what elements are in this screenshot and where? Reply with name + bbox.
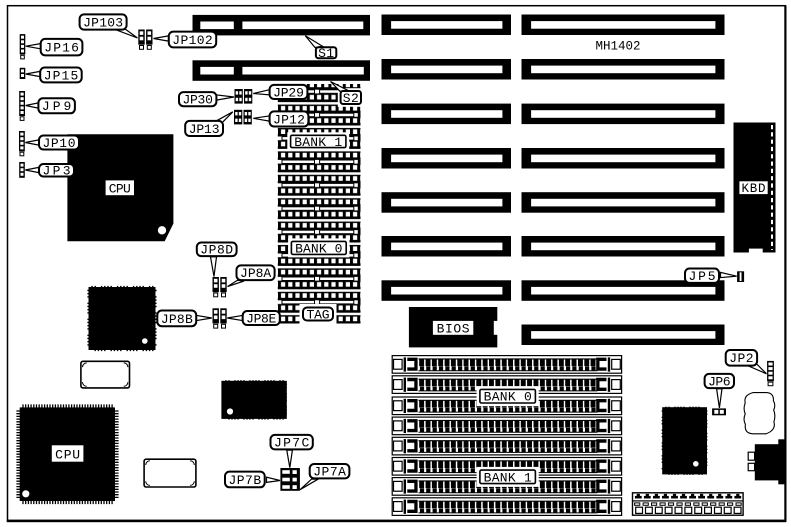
svg-text:S2: S2 [343, 91, 359, 106]
svg-text:S1: S1 [318, 46, 334, 61]
svg-text:CPU: CPU [109, 182, 131, 197]
svg-text:JP7A: JP7A [313, 465, 346, 480]
svg-text:JP102: JP102 [172, 33, 212, 48]
svg-text:JP3: JP3 [43, 164, 71, 179]
svg-text:JP8D: JP8D [200, 243, 233, 258]
svg-text:BANK 1: BANK 1 [294, 135, 342, 150]
svg-text:JP12: JP12 [273, 112, 305, 127]
svg-text:JP10: JP10 [43, 136, 76, 151]
svg-text:BANK 1: BANK 1 [484, 470, 532, 485]
svg-text:JP30: JP30 [183, 93, 213, 108]
svg-text:JP2: JP2 [729, 351, 753, 366]
svg-text:JP8A: JP8A [240, 266, 271, 281]
svg-text:JP13: JP13 [189, 122, 220, 137]
svg-text:BANK 0: BANK 0 [295, 241, 342, 256]
svg-text:JP9: JP9 [42, 99, 72, 114]
svg-text:JP15: JP15 [44, 68, 79, 83]
svg-text:JP5: JP5 [689, 269, 716, 284]
svg-text:JP16: JP16 [44, 41, 79, 56]
svg-text:JP8E: JP8E [246, 311, 276, 326]
svg-text:BIOS: BIOS [437, 321, 470, 336]
svg-text:JP8B: JP8B [161, 312, 193, 327]
svg-text:MH1402: MH1402 [596, 40, 641, 54]
svg-text:CPU: CPU [55, 448, 80, 463]
svg-text:JP7C: JP7C [274, 436, 309, 451]
svg-text:JP29: JP29 [273, 85, 304, 100]
svg-text:BANK 0: BANK 0 [484, 390, 532, 405]
svg-text:JP103: JP103 [83, 15, 123, 30]
svg-text:JP7B: JP7B [228, 473, 261, 488]
svg-text:JP6: JP6 [708, 374, 730, 389]
svg-text:TAG: TAG [307, 307, 330, 322]
svg-text:KBD: KBD [742, 182, 766, 196]
